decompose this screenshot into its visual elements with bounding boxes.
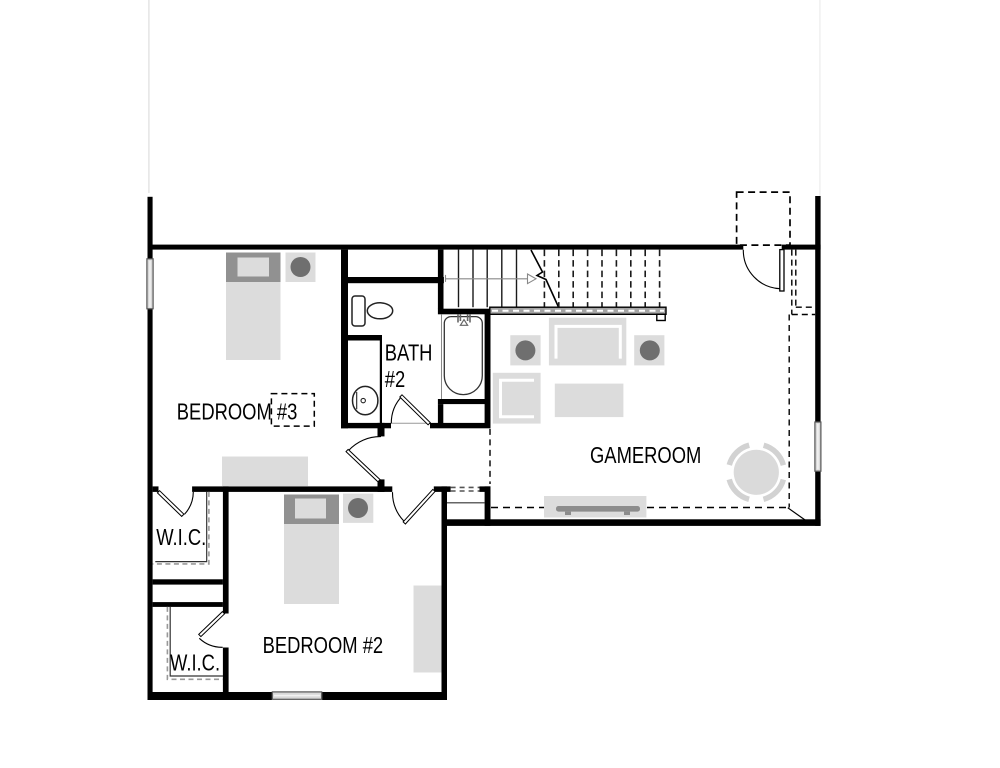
svg-text:W.I.C.: W.I.C. <box>156 525 206 550</box>
svg-text:BEDROOM #2: BEDROOM #2 <box>263 633 384 658</box>
svg-text:BATH: BATH <box>385 341 433 366</box>
svg-text:GAMEROOM: GAMEROOM <box>590 443 701 468</box>
svg-text:BEDROOM #3: BEDROOM #3 <box>177 400 298 425</box>
svg-text:W.I.C.: W.I.C. <box>170 651 220 676</box>
svg-text:#2: #2 <box>385 367 405 392</box>
